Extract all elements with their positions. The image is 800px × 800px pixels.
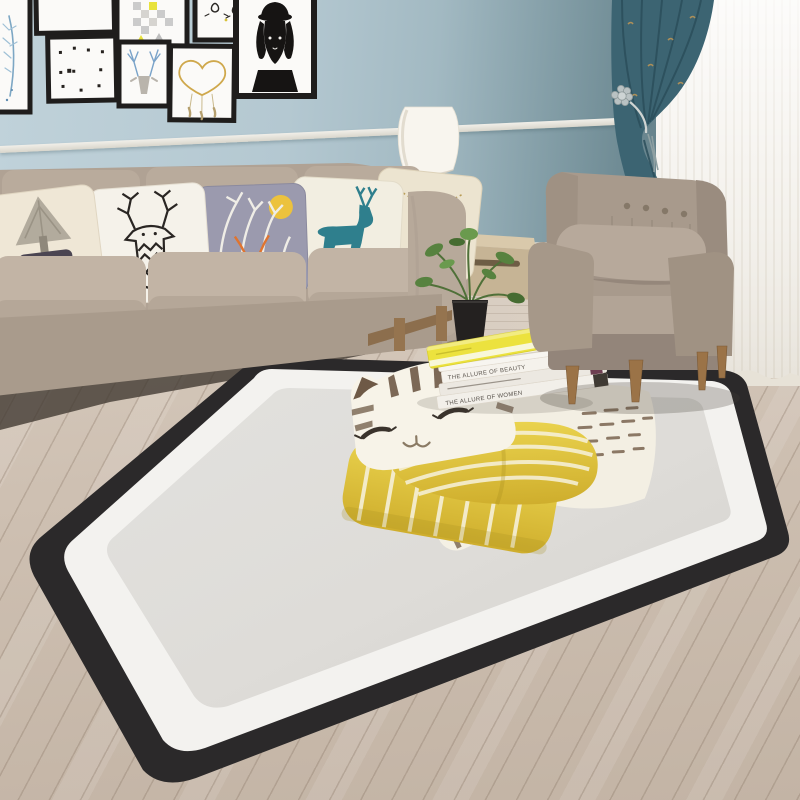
armchair-left-arm	[528, 242, 594, 352]
armchair-right-arm	[668, 252, 734, 356]
frame-heart-dreamcatcher	[170, 46, 235, 121]
living-room-photo: you are in my heart	[0, 0, 800, 800]
sofa-leg	[394, 318, 405, 351]
sofa-leg	[436, 306, 447, 341]
frame-dachshund	[236, 0, 314, 96]
frame-feather	[0, 0, 30, 112]
sofa: you are in my heart	[0, 163, 483, 396]
frame-dots	[48, 36, 117, 101]
gallery-wall	[0, 0, 314, 120]
frame-antler-deer	[119, 42, 169, 106]
black-planter	[452, 300, 488, 342]
frame-blank	[36, 0, 115, 33]
